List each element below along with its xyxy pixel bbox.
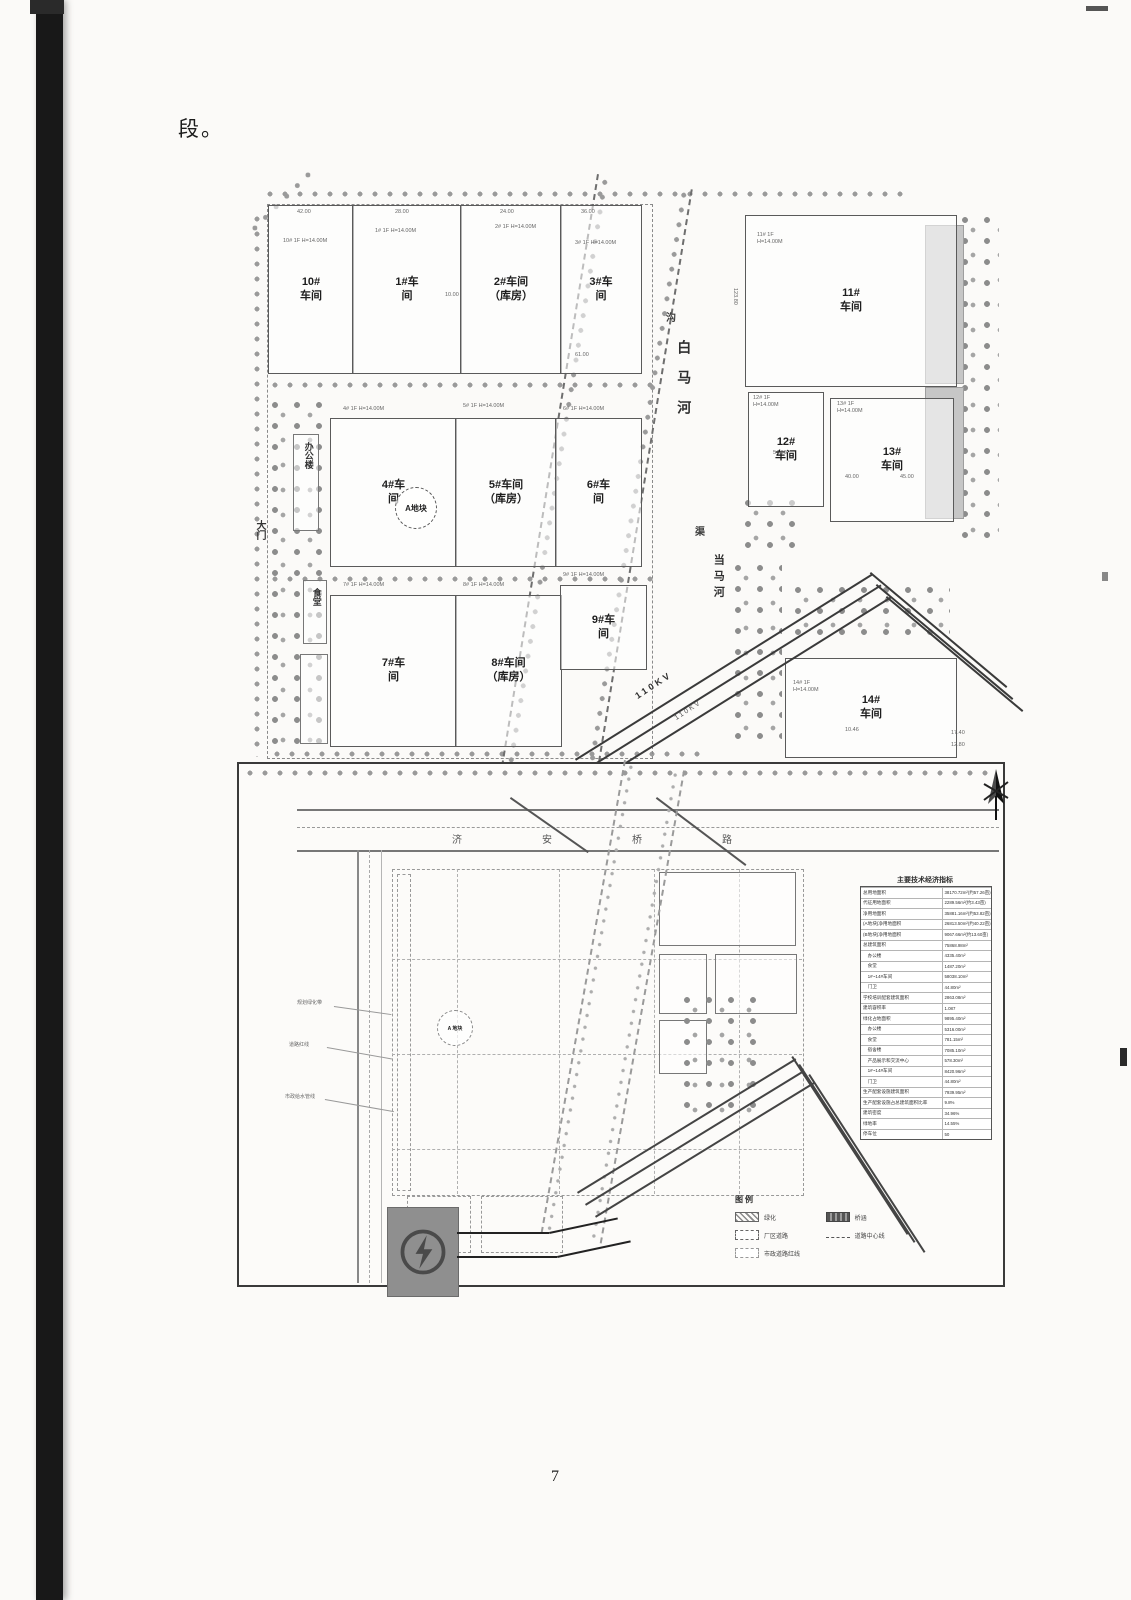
legend-swatch bbox=[826, 1237, 850, 1238]
annotation: 11# 1F H=14.00M bbox=[757, 232, 783, 246]
table-row-label: 产品展示和交流中心 bbox=[861, 1056, 943, 1066]
table-row: 代征用地面积 2289.56m²(约3.43亩) bbox=[861, 898, 991, 909]
table-row-label: 门卫 bbox=[861, 983, 943, 993]
annotation: 42.00 bbox=[297, 209, 311, 216]
building: 8#车间 （库房） bbox=[455, 595, 562, 747]
table-row-value: 44.80m² bbox=[943, 1077, 991, 1087]
building: 7#车 间 bbox=[330, 595, 457, 747]
table-row: 总用地面积 38170.72m²(约57.26亩) bbox=[861, 887, 991, 898]
road-centerline bbox=[369, 850, 370, 1283]
annotation: 17.40 bbox=[951, 730, 965, 737]
annotation: 渠 bbox=[695, 526, 705, 539]
table-row-value: 9895.40m² bbox=[943, 1014, 991, 1024]
table-row-value: 35881.16m²(约53.82亩) bbox=[943, 909, 991, 919]
annotation: 9# 1F H=14.00M bbox=[563, 572, 604, 579]
table-row-label: 办公楼 bbox=[861, 1025, 943, 1035]
annotation: 10# 1F H=14.00M bbox=[283, 238, 327, 245]
table-row-label: 总建筑面积 bbox=[861, 941, 943, 951]
annotation: 14# 1F H=14.00M bbox=[793, 680, 819, 694]
table-row-label: (A地块)净用地面积 bbox=[861, 920, 943, 930]
building-label: 9#车 间 bbox=[592, 614, 615, 642]
building: 14# 车间 bbox=[785, 658, 957, 758]
building-label: 1#车 间 bbox=[395, 276, 418, 304]
table-row-label: (B地块)净用地面积 bbox=[861, 930, 943, 940]
scan-mark bbox=[1086, 6, 1108, 11]
table-row: 总建筑面积 75868.98m² bbox=[861, 940, 991, 951]
building-label: 14# 车间 bbox=[860, 694, 882, 722]
econ-table-title: 主要技术经济指标 bbox=[860, 875, 990, 885]
annotation: 规划绿化带 bbox=[297, 1000, 322, 1007]
table-row: 食堂 781.15m² bbox=[861, 1034, 991, 1045]
building: 9#车 间 bbox=[560, 585, 647, 670]
scan-edge-band bbox=[36, 0, 63, 1600]
table-row-value: 578.30m² bbox=[943, 1056, 991, 1066]
annotation: 办公楼 bbox=[302, 442, 314, 469]
building: 6#车 间 bbox=[555, 418, 642, 567]
table-row-label: 停车位 bbox=[861, 1130, 943, 1140]
table-row-label: 生产配套设施占总建筑面积比率 bbox=[861, 1098, 943, 1108]
table-row-label: 绿地率 bbox=[861, 1119, 943, 1129]
annotation: 54.00 bbox=[773, 450, 787, 457]
leader-line bbox=[325, 1099, 394, 1112]
table-row-label: 食堂 bbox=[861, 962, 943, 972]
table-row: 宿舍楼 7085.10m² bbox=[861, 1045, 991, 1056]
annotation: 2# 1F H=14.00M bbox=[495, 224, 536, 231]
table-row-label: 建筑密度 bbox=[861, 1109, 943, 1119]
building: 10# 车间 bbox=[268, 205, 354, 374]
annotation: 12.80 bbox=[951, 742, 965, 749]
table-row: 生产配套设施建筑面积 7939.95m² bbox=[861, 1087, 991, 1098]
annotation: 13# 1F H=14.00M bbox=[837, 401, 863, 415]
table-row: 门卫 44.80m² bbox=[861, 982, 991, 993]
annotation: 3# 1F H=14.00M bbox=[575, 240, 616, 247]
tree-row bbox=[243, 766, 995, 779]
table-row-value: 75868.98m² bbox=[943, 941, 991, 951]
table-row-label: 1#~14#车间 bbox=[861, 972, 943, 982]
annotation: 12# 1F H=14.00M bbox=[753, 395, 779, 409]
table-row-value: 38170.72m²(约57.26亩) bbox=[943, 888, 991, 898]
table-row-value: 2863.08m² bbox=[943, 993, 991, 1003]
building: 4#车 间 bbox=[330, 418, 457, 567]
building-label: 6#车 间 bbox=[587, 479, 610, 507]
building: 5#车间 （库房） bbox=[455, 418, 557, 567]
legend-item: 绿化 bbox=[735, 1212, 814, 1222]
legend-item-label: 绿化 bbox=[764, 1213, 776, 1222]
annotation: 1# 1F H=14.00M bbox=[375, 228, 416, 235]
annotation: 45.00 bbox=[900, 474, 914, 481]
table-row: 绿地率 14.55% bbox=[861, 1118, 991, 1129]
road-edge bbox=[381, 850, 382, 1283]
table-row-label: 学校培训配套建筑面积 bbox=[861, 993, 943, 1003]
figure1-siteplan: 10# 车间 1#车 间 2#车间 （库房） 3#车 间 4#车 间 bbox=[245, 182, 1002, 760]
table-row-label: 生产配套设施建筑面积 bbox=[861, 1088, 943, 1098]
a-block-circle: A 地块 bbox=[437, 1010, 473, 1046]
legend-item-label: 道路中心线 bbox=[855, 1231, 885, 1240]
scan-mark bbox=[30, 0, 64, 14]
building-label: 13# 车间 bbox=[881, 446, 903, 474]
legend-item-label: 市政道路红线 bbox=[764, 1249, 800, 1258]
annotation: 济安桥路 bbox=[452, 834, 812, 847]
table-row-value: 50 bbox=[943, 1130, 991, 1140]
legend-item: 桥涵 bbox=[826, 1212, 920, 1222]
leader-line bbox=[334, 1006, 392, 1015]
annotation: 61.00 bbox=[575, 352, 589, 359]
building: 13# 车间 bbox=[830, 398, 954, 522]
landscape-grove bbox=[730, 560, 782, 750]
table-row-value: 7939.95m² bbox=[943, 1088, 991, 1098]
tree-row bbox=[250, 212, 265, 757]
table-row-value: 4335.40m² bbox=[943, 951, 991, 961]
table-row: (B地块)净用地面积 9067.66m²(约13.60亩) bbox=[861, 929, 991, 940]
cable-line bbox=[457, 1232, 549, 1234]
building-label: 10# 车间 bbox=[300, 276, 322, 304]
table-row-value: 9.8% bbox=[943, 1098, 991, 1108]
legend-item-label: 厂区道路 bbox=[764, 1231, 788, 1240]
page-number: 7 bbox=[535, 1468, 575, 1486]
table-row-value: 44.80m² bbox=[943, 983, 991, 993]
annotation: 28.00 bbox=[395, 209, 409, 216]
annotation: 7# 1F H=14.00M bbox=[343, 582, 384, 589]
annotation: 10.46 bbox=[845, 727, 859, 734]
cable-line bbox=[457, 1256, 557, 1258]
legend-item: 厂区道路 bbox=[735, 1230, 814, 1240]
building-label: 2#车间 （库房） bbox=[489, 276, 533, 304]
road-edge bbox=[357, 850, 359, 1283]
table-row-label: 食堂 bbox=[861, 1035, 943, 1045]
table-row-label: 建筑容积率 bbox=[861, 1004, 943, 1014]
table-row-label: 总用地面积 bbox=[861, 888, 943, 898]
table-row-value: 5316.00m² bbox=[943, 1025, 991, 1035]
annotation: 40.00 bbox=[845, 474, 859, 481]
annotation: 36.00 bbox=[581, 209, 595, 216]
legend-swatch bbox=[826, 1212, 850, 1222]
econ-table: 总用地面积 38170.72m²(约57.26亩) 代征用地面积 2289.56… bbox=[860, 886, 992, 1140]
annotation: 6# 1F H=14.00M bbox=[563, 406, 604, 413]
legend-title: 图例 bbox=[735, 1194, 920, 1205]
table-row-label: 代征用地面积 bbox=[861, 899, 943, 909]
building-label: 5#车间 （库房） bbox=[484, 479, 528, 507]
table-row-label: 办公楼 bbox=[861, 951, 943, 961]
table-row-value: 14.55% bbox=[943, 1119, 991, 1129]
table-row-label: 净用地面积 bbox=[861, 909, 943, 919]
annotation: 食堂 bbox=[310, 588, 322, 606]
scan-mark bbox=[1120, 1048, 1127, 1066]
annotation: 10.00 bbox=[445, 292, 459, 299]
table-row-label: 门卫 bbox=[861, 1077, 943, 1087]
table-row-value: 34.96% bbox=[943, 1109, 991, 1119]
table-row-value: 58038.10m² bbox=[943, 972, 991, 982]
table-row-value: 8420.96m² bbox=[943, 1067, 991, 1077]
table-row: 1#~14#车间 58038.10m² bbox=[861, 971, 991, 982]
table-row-value: 26813.50m²(约40.22亩) bbox=[943, 920, 991, 930]
figure2-siteplan: A 地块 主要技术经济指标 bbox=[237, 762, 1005, 1287]
table-row: 建筑容积率 1.087 bbox=[861, 1003, 991, 1014]
table-row: 建筑密度 34.96% bbox=[861, 1108, 991, 1119]
table-row-label: 绿化占地面积 bbox=[861, 1014, 943, 1024]
annotation: 大门 bbox=[253, 520, 266, 540]
legend-items: 绿化 桥涵 厂区道路 道路中心线 bbox=[735, 1212, 920, 1258]
a-block-circle: A地块 bbox=[395, 487, 437, 529]
annotation: 8# 1F H=14.00M bbox=[463, 582, 504, 589]
legend-swatch bbox=[735, 1230, 759, 1240]
leader-line bbox=[327, 1047, 392, 1059]
annotation: 4# 1F H=14.00M bbox=[343, 406, 384, 413]
building: 3#车 间 bbox=[560, 205, 642, 374]
table-row-value: 1.087 bbox=[943, 1004, 991, 1014]
table-row: 学校培训配套建筑面积 2863.08m² bbox=[861, 992, 991, 1003]
tree-row bbox=[263, 187, 908, 202]
annotation: 110KV bbox=[673, 698, 704, 722]
table-row-value: 2289.56m²(约3.43亩) bbox=[943, 899, 991, 909]
table-row: 食堂 1487.20m² bbox=[861, 961, 991, 972]
table-row-value: 7085.10m² bbox=[943, 1046, 991, 1056]
cable-line bbox=[557, 1240, 631, 1258]
annotation: 当马河 bbox=[711, 554, 725, 602]
annotation: 24.00 bbox=[500, 209, 514, 216]
building-label: 8#车间 （库房） bbox=[487, 657, 531, 685]
aux-building-rect bbox=[300, 654, 328, 744]
table-row-label: 宿舍楼 bbox=[861, 1046, 943, 1056]
table-row: 1#~14#车间 8420.96m² bbox=[861, 1066, 991, 1077]
building-label: 3#车 间 bbox=[589, 276, 612, 304]
annotation: 5# 1F H=14.00M bbox=[463, 403, 504, 410]
legend-item-label: 桥涵 bbox=[855, 1213, 867, 1222]
table-row: 绿化占地面积 9895.40m² bbox=[861, 1013, 991, 1024]
annotation: 市政给水管线 bbox=[285, 1094, 315, 1101]
table-row: 门卫 44.80m² bbox=[861, 1076, 991, 1087]
legend-swatch bbox=[735, 1212, 759, 1222]
table-row-value: 1487.20m² bbox=[943, 962, 991, 972]
intro-text: 段。 bbox=[178, 116, 224, 143]
legend-swatch bbox=[735, 1248, 759, 1258]
table-row-value: 781.15m² bbox=[943, 1035, 991, 1045]
annotation: 沟 bbox=[666, 312, 676, 325]
legend-item: 市政道路红线 bbox=[735, 1248, 814, 1258]
table-row-value: 9067.66m²(约13.60亩) bbox=[943, 930, 991, 940]
table-row: 产品展示和交流中心 578.30m² bbox=[861, 1055, 991, 1066]
table-row: (A地块)净用地面积 26813.50m²(约40.22亩) bbox=[861, 919, 991, 930]
annotation: 123.80 bbox=[731, 288, 738, 305]
legend-item: 道路中心线 bbox=[826, 1230, 920, 1240]
scanned-document-page: 段。 10# 车间 bbox=[0, 0, 1131, 1600]
table-row-label: 1#~14#车间 bbox=[861, 1067, 943, 1077]
building-rect bbox=[659, 872, 796, 946]
annotation: 白马河 bbox=[675, 340, 693, 430]
legend: 图例 绿化 桥涵 厂区道路 bbox=[735, 1194, 920, 1258]
north-arrow-icon bbox=[981, 768, 1011, 822]
building-label: 11# 车间 bbox=[840, 287, 862, 315]
table-row: 办公楼 4335.40m² bbox=[861, 950, 991, 961]
substation-icon bbox=[387, 1207, 459, 1297]
building-label: 7#车 间 bbox=[382, 657, 405, 685]
table-row: 停车位 50 bbox=[861, 1129, 991, 1140]
table-row: 生产配套设施占总建筑面积比率 9.8% bbox=[861, 1097, 991, 1108]
scan-mark bbox=[1102, 572, 1108, 581]
plant-west-strip bbox=[397, 874, 411, 1191]
annotation: 道路红线 bbox=[289, 1042, 309, 1049]
table-row: 净用地面积 35881.16m²(约53.82亩) bbox=[861, 908, 991, 919]
table-row: 办公楼 5316.00m² bbox=[861, 1024, 991, 1035]
